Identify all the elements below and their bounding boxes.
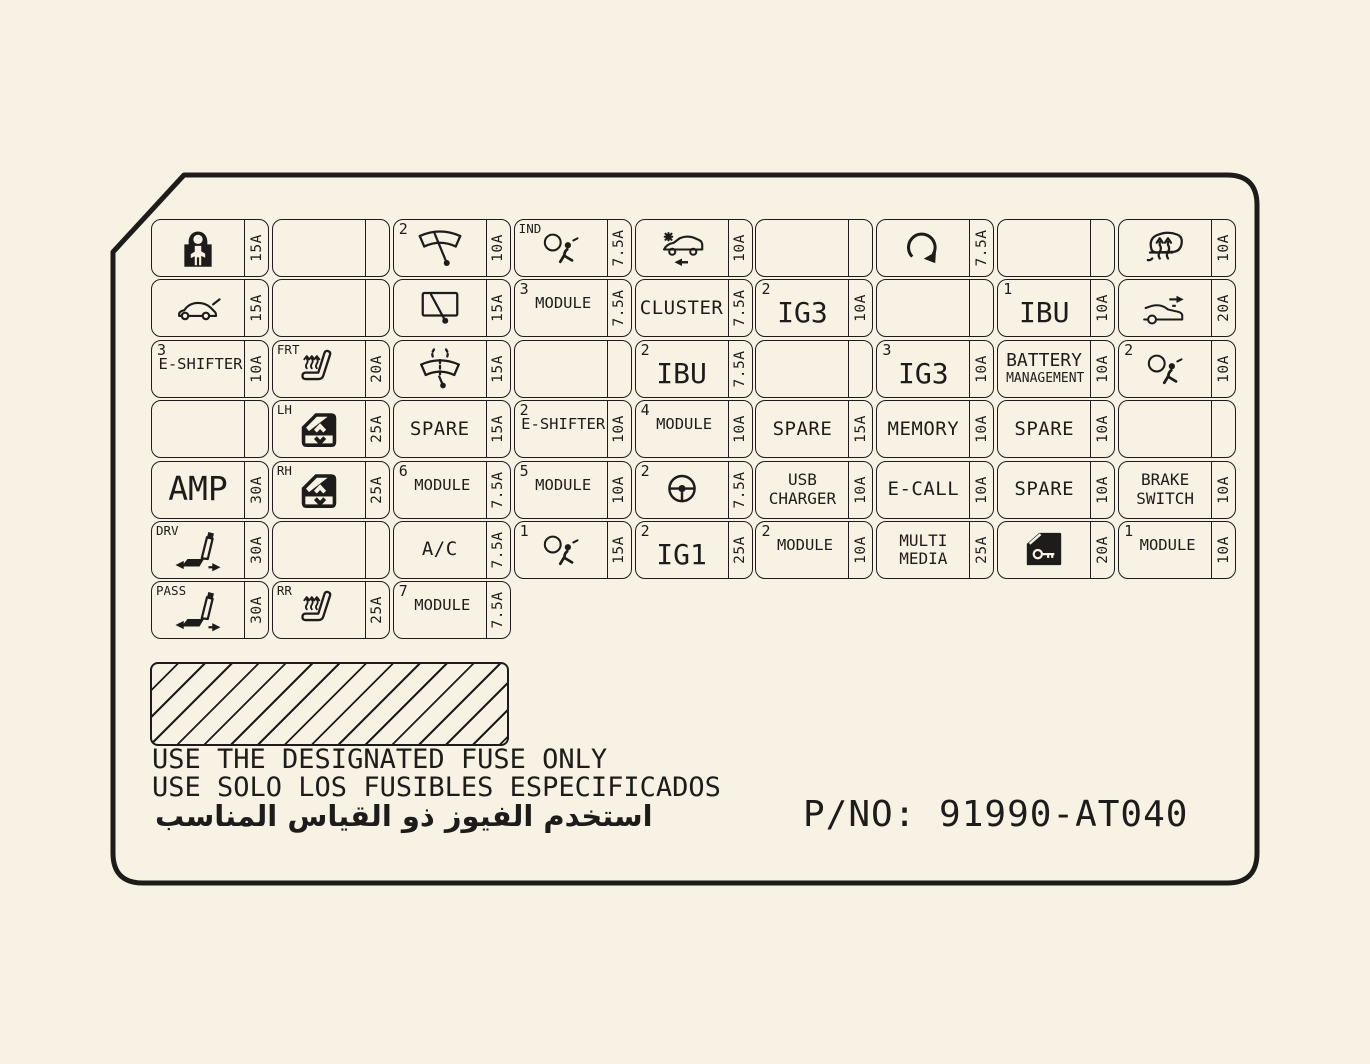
amp-strip: 15A <box>848 401 872 457</box>
fuse-cell-brake-switch: BRAKESWITCH10A <box>1118 461 1236 519</box>
fuse-cell-empty <box>514 340 632 398</box>
fuse-cell-empty <box>1118 400 1236 458</box>
fuse-cell-empty <box>755 340 873 398</box>
cell-label: MEDIA <box>899 550 947 568</box>
cell-label-lines: MODULE <box>414 477 470 494</box>
amp-rating: 10A <box>1216 355 1232 383</box>
fuse-cell-empty <box>272 219 390 277</box>
amp-strip: 20A <box>365 341 389 397</box>
cell-label-lines: MULTIMEDIA <box>899 532 947 569</box>
amp-strip: 25A <box>365 401 389 457</box>
fuse-cell-e-shifter: 2E-SHIFTER10A <box>514 400 632 458</box>
amp-rating: 10A <box>1095 355 1111 383</box>
fuse-cell-body <box>877 280 969 336</box>
amp-strip: 25A <box>365 582 389 638</box>
amp-rating: 7.5A <box>490 592 506 629</box>
cell-label-lines: IG3 <box>898 358 949 389</box>
cell-label: SWITCH <box>1136 490 1194 508</box>
amp-rating: 10A <box>974 415 990 443</box>
cell-label: MODULE <box>414 477 470 494</box>
fuse-cell-module: 4MODULE10A <box>635 400 753 458</box>
cell-label-lines: SPARE <box>773 419 833 440</box>
fuse-cell-body: 5MODULE <box>515 462 607 518</box>
amp-rating: 30A <box>249 536 265 564</box>
amp-strip: 10A <box>607 401 631 457</box>
amp-rating: 7.5A <box>974 230 990 267</box>
amp-strip: 7.5A <box>486 462 510 518</box>
amp-strip: 7.5A <box>486 522 510 578</box>
fuse-cell-body: 2 <box>1119 341 1211 397</box>
fuse-cell-empty <box>151 400 269 458</box>
fuse-cell-body: 2 <box>394 220 486 276</box>
fuse-cell-spare: SPARE10A <box>997 461 1115 519</box>
cell-label: IG3 <box>898 358 949 389</box>
amp-strip: 10A <box>1211 220 1235 276</box>
amp-strip <box>365 280 389 336</box>
fuse-cell-body <box>756 220 848 276</box>
cell-label-lines: USBCHARGER <box>769 471 836 508</box>
fuse-cell-body <box>152 220 244 276</box>
fuse-cell-airbag: IND7.5A <box>514 219 632 277</box>
amp-rating: 20A <box>1216 295 1232 323</box>
amp-strip: 30A <box>244 462 268 518</box>
fuse-cell-washer: 15A <box>393 340 511 398</box>
fuse-cell-window-switch: LH25A <box>272 400 390 458</box>
fuse-cell-empty <box>997 219 1115 277</box>
fuse-cell-body: 1MODULE <box>1119 522 1211 578</box>
fuse-cell-body: DRV <box>152 522 244 578</box>
fuse-cell-body <box>1119 280 1211 336</box>
amp-rating: 15A <box>490 295 506 323</box>
amp-strip <box>365 522 389 578</box>
fuse-cell-module: 6MODULE7.5A <box>393 461 511 519</box>
fuse-cell-spare: SPARE15A <box>755 400 873 458</box>
amp-rating: 15A <box>853 415 869 443</box>
fuse-cell-body: 4MODULE <box>636 401 728 457</box>
amp-strip: 10A <box>1090 280 1114 336</box>
fuse-cell-body: 2IBU <box>636 341 728 397</box>
cell-index-number: 2 <box>1124 341 1133 359</box>
fuse-cell-body: SPARE <box>394 401 486 457</box>
fuse-cell-empty <box>876 279 994 337</box>
fuse-cell-body: PASS <box>152 582 244 638</box>
fuse-cell-body: LH <box>273 401 365 457</box>
fuse-cell-body <box>273 220 365 276</box>
fuse-cell-body: 2E-SHIFTER <box>515 401 607 457</box>
amp-strip: 10A <box>607 462 631 518</box>
amp-strip: 10A <box>1211 462 1235 518</box>
cell-index-number: 7 <box>399 582 408 600</box>
amp-rating: 25A <box>369 596 385 624</box>
fuse-cell-car-tailgate: 15A <box>151 279 269 337</box>
cell-position-tag: RR <box>277 583 292 598</box>
amp-rating: 7.5A <box>611 290 627 327</box>
cell-label-lines: BRAKESWITCH <box>1136 471 1194 508</box>
fuse-cell-wiper-front: 210A <box>393 219 511 277</box>
amp-strip: 7.5A <box>486 582 510 638</box>
fuse-cell-body <box>998 220 1090 276</box>
fuse-cell-circular-arrow: 7.5A <box>876 219 994 277</box>
fuse-cell-module: 1MODULE10A <box>1118 521 1236 579</box>
cell-index-number: 2 <box>641 341 650 359</box>
cell-index-number: 2 <box>641 462 650 480</box>
fuse-cell-body: 7MODULE <box>394 582 486 638</box>
amp-strip: 30A <box>244 582 268 638</box>
cell-label: AMP <box>168 471 228 508</box>
amp-strip: 15A <box>244 280 268 336</box>
fuse-cell-body: MEMORY <box>877 401 969 457</box>
door-key-icon <box>1020 528 1068 572</box>
amp-rating: 7.5A <box>732 350 748 387</box>
amp-rating: 25A <box>732 536 748 564</box>
cell-label: MODULE <box>535 295 591 312</box>
amp-rating: 10A <box>732 415 748 443</box>
amp-strip: 10A <box>848 522 872 578</box>
cell-index-number: 3 <box>520 280 529 298</box>
amp-rating: 25A <box>369 415 385 443</box>
amp-strip: 7.5A <box>728 280 752 336</box>
fuse-cell-child-lock: 15A <box>151 219 269 277</box>
cell-label-lines: IBU <box>656 358 707 389</box>
amp-strip: 20A <box>1211 280 1235 336</box>
fuse-grid: 15A210AIND7.5A10A7.5A10A15A15A3MODULE7.5… <box>151 219 1236 639</box>
fuse-cell-steering-wheel: 27.5A <box>635 461 753 519</box>
fuse-cell-multi-media: MULTIMEDIA25A <box>876 521 994 579</box>
cell-label-lines: MODULE <box>1140 537 1196 554</box>
amp-strip <box>848 220 872 276</box>
cell-position-tag: DRV <box>156 523 179 538</box>
cell-index-number: 3 <box>882 341 891 359</box>
fuse-cell-usb-charger: USBCHARGER10A <box>755 461 873 519</box>
fuse-cell-module: 7MODULE7.5A <box>393 581 511 639</box>
fuse-cell-body <box>273 280 365 336</box>
fuse-cell-body <box>636 220 728 276</box>
fuse-cell-seat-power: PASS30A <box>151 581 269 639</box>
amp-strip: 10A <box>969 462 993 518</box>
amp-strip: 10A <box>969 341 993 397</box>
amp-strip: 15A <box>486 401 510 457</box>
amp-rating: 10A <box>974 355 990 383</box>
cell-label-lines: SPARE <box>1014 479 1074 500</box>
cell-label: SPARE <box>773 419 833 440</box>
fuse-cell-body: SPARE <box>998 462 1090 518</box>
amp-strip <box>1211 401 1235 457</box>
cell-index-number: 6 <box>399 462 408 480</box>
fuse-cell-body: 2IG3 <box>756 280 848 336</box>
amp-strip: 10A <box>244 341 268 397</box>
seat-heated-icon <box>294 346 344 392</box>
fuse-cell-body <box>998 522 1090 578</box>
fuse-cell-body: AMP <box>152 462 244 518</box>
amp-strip <box>1090 220 1114 276</box>
amp-rating: 15A <box>249 234 265 262</box>
cell-index-number: 1 <box>1003 280 1012 298</box>
amp-strip: 25A <box>969 522 993 578</box>
amp-strip: 7.5A <box>607 220 631 276</box>
amp-rating: 10A <box>853 295 869 323</box>
defrost-rear-icon <box>1140 224 1190 272</box>
cell-label: IBU <box>1019 297 1070 328</box>
fuse-cell-body <box>394 280 486 336</box>
amp-strip: 10A <box>728 401 752 457</box>
cell-label-lines: MODULE <box>414 597 470 614</box>
window-switch-icon <box>294 406 344 452</box>
amp-strip: 15A <box>486 341 510 397</box>
fuse-cell-body: A/C <box>394 522 486 578</box>
fuse-cell-ig3: 3IG310A <box>876 340 994 398</box>
amp-strip <box>969 280 993 336</box>
cell-label: E-SHIFTER <box>159 356 243 373</box>
cell-position-tag: FRT <box>277 342 300 357</box>
amp-strip <box>848 341 872 397</box>
fuse-cell-body: E-CALL <box>877 462 969 518</box>
cell-label-lines: SPARE <box>1014 419 1074 440</box>
fuse-cell-door-key: 20A <box>997 521 1115 579</box>
fuse-cell-empty <box>755 219 873 277</box>
fuse-cell-empty <box>272 521 390 579</box>
amp-rating: 10A <box>490 234 506 262</box>
amp-strip: 15A <box>244 220 268 276</box>
amp-rating: 10A <box>732 234 748 262</box>
cell-label: USB <box>788 471 817 489</box>
cell-label: MEMORY <box>888 419 960 440</box>
cell-label-lines: IG1 <box>656 539 707 570</box>
cell-label: E-CALL <box>888 479 960 500</box>
amp-strip: 10A <box>1090 462 1114 518</box>
fuse-cell-spare: SPARE15A <box>393 400 511 458</box>
amp-strip: 10A <box>486 220 510 276</box>
cell-position-tag: RH <box>277 463 292 478</box>
fuse-cell-ibu: 2IBU7.5A <box>635 340 753 398</box>
amp-strip: 10A <box>969 401 993 457</box>
amp-strip: 25A <box>365 462 389 518</box>
cell-label-lines: BATTERYMANAGEMENT <box>1006 351 1084 386</box>
cell-label: IG1 <box>656 539 707 570</box>
cell-label: CLUSTER <box>640 298 724 319</box>
cell-label: MODULE <box>1140 537 1196 554</box>
cell-label: MODULE <box>414 597 470 614</box>
fuse-cell-body: BRAKESWITCH <box>1119 462 1211 518</box>
amp-rating: 7.5A <box>611 230 627 267</box>
amp-rating: 10A <box>1216 234 1232 262</box>
amp-rating: 7.5A <box>490 531 506 568</box>
car-tailgate-icon <box>169 285 227 331</box>
amp-rating: 20A <box>369 355 385 383</box>
cell-label: IG3 <box>777 297 828 328</box>
cell-index-number: 2 <box>399 220 408 238</box>
amp-rating: 10A <box>853 536 869 564</box>
cell-label-lines: A/C <box>422 539 458 560</box>
amp-strip: 25A <box>728 522 752 578</box>
cell-label: IBU <box>656 358 707 389</box>
fuse-cell-body <box>877 220 969 276</box>
amp-rating: 10A <box>853 476 869 504</box>
cell-label-lines: AMP <box>168 471 228 508</box>
fuse-cell-body <box>515 341 607 397</box>
cell-label-lines: MODULE <box>656 416 712 433</box>
fuse-cell-window-switch: RH25A <box>272 461 390 519</box>
note-arabic: استخدم الفيوز ذو القياس المناسب <box>155 799 653 833</box>
amp-strip: 7.5A <box>607 280 631 336</box>
cell-position-tag: PASS <box>156 583 186 598</box>
amp-strip: 15A <box>486 280 510 336</box>
steering-wheel-icon <box>659 467 705 513</box>
cell-label-lines: MODULE <box>535 477 591 494</box>
cell-position-tag: LH <box>277 402 292 417</box>
amp-rating: 10A <box>249 355 265 383</box>
cell-position-tag: IND <box>519 221 542 236</box>
fuse-cell-body: RR <box>273 582 365 638</box>
amp-strip: 7.5A <box>728 462 752 518</box>
fuse-cell-body: 2 <box>636 462 728 518</box>
window-switch-icon <box>294 467 344 513</box>
fuse-cell-body: SPARE <box>756 401 848 457</box>
fuse-box-card: 15A210AIND7.5A10A7.5A10A15A15A3MODULE7.5… <box>0 0 1370 1064</box>
amp-strip: 10A <box>728 220 752 276</box>
amp-strip: 15A <box>607 522 631 578</box>
cell-label-lines: E-SHIFTER <box>159 356 243 373</box>
amp-strip: 20A <box>1090 522 1114 578</box>
amp-rating: 10A <box>1095 295 1111 323</box>
cell-label: E-SHIFTER <box>521 416 605 433</box>
cell-label: MODULE <box>535 477 591 494</box>
cell-index-number: 2 <box>641 522 650 540</box>
cell-label: MODULE <box>656 416 712 433</box>
car-crash-icon <box>653 224 711 272</box>
fuse-cell-ig3: 2IG310A <box>755 279 873 337</box>
amp-rating: 7.5A <box>732 290 748 327</box>
airbag-icon <box>535 226 587 270</box>
cell-index-number: 3 <box>157 341 166 359</box>
fuse-cell-body: BATTERYMANAGEMENT <box>998 341 1090 397</box>
amp-strip <box>365 220 389 276</box>
cell-index-number: 2 <box>761 522 770 540</box>
fuse-cell-body <box>152 401 244 457</box>
amp-rating: 10A <box>1216 536 1232 564</box>
fuse-cell-airbag: 210A <box>1118 340 1236 398</box>
washer-icon <box>413 345 467 393</box>
cell-label-lines: SPARE <box>410 419 470 440</box>
fuse-cell-body: SPARE <box>998 401 1090 457</box>
amp-rating: 10A <box>1216 476 1232 504</box>
fuse-cell-body: 3E-SHIFTER <box>152 341 244 397</box>
fuse-cell-body <box>152 280 244 336</box>
fuse-cell-car-crash: 10A <box>635 219 753 277</box>
fuse-cell-body: 1 <box>515 522 607 578</box>
fuse-cell-body: RH <box>273 462 365 518</box>
fuse-cell-seat-heated: FRT20A <box>272 340 390 398</box>
amp-strip: 10A <box>1211 341 1235 397</box>
cell-label-lines: MODULE <box>777 537 833 554</box>
fuse-cell-body: 6MODULE <box>394 462 486 518</box>
fuse-cell-body: FRT <box>273 341 365 397</box>
fuse-cell-car-arrow: 20A <box>1118 279 1236 337</box>
fuse-cell-body <box>394 341 486 397</box>
cell-label: SPARE <box>410 419 470 440</box>
fuse-cell-battery-management: BATTERYMANAGEMENT10A <box>997 340 1115 398</box>
child-lock-icon <box>175 223 221 273</box>
cell-label-lines: E-SHIFTER <box>521 416 605 433</box>
amp-strip: 10A <box>848 280 872 336</box>
amp-rating: 7.5A <box>490 471 506 508</box>
cell-index-number: 2 <box>761 280 770 298</box>
fuse-cell-ibu: 1IBU10A <box>997 279 1115 337</box>
circular-arrow-icon <box>900 225 946 271</box>
fuse-cell-module: 2MODULE10A <box>755 521 873 579</box>
amp-strip: 10A <box>848 462 872 518</box>
cell-index-number: 1 <box>520 522 529 540</box>
fuse-cell-body: CLUSTER <box>636 280 728 336</box>
fuse-cell-spare: SPARE10A <box>997 400 1115 458</box>
amp-rating: 10A <box>974 476 990 504</box>
amp-strip: 10A <box>1211 522 1235 578</box>
cell-label: MODULE <box>777 537 833 554</box>
amp-rating: 30A <box>249 596 265 624</box>
fuse-cell-body <box>1119 401 1211 457</box>
fuse-cell-e-shifter: 3E-SHIFTER10A <box>151 340 269 398</box>
fuse-cell-body: 3IG3 <box>877 341 969 397</box>
cell-label-lines: MEMORY <box>888 419 960 440</box>
amp-rating: 10A <box>611 476 627 504</box>
amp-strip: 10A <box>1090 341 1114 397</box>
fuse-cell-body: MULTIMEDIA <box>877 522 969 578</box>
fuse-cell-body: USBCHARGER <box>756 462 848 518</box>
hatch-box <box>150 662 509 746</box>
fuse-cell-body <box>1119 220 1211 276</box>
cell-label: MULTI <box>899 532 947 550</box>
amp-rating: 7.5A <box>732 471 748 508</box>
amp-rating: 25A <box>974 536 990 564</box>
amp-rating: 20A <box>1095 536 1111 564</box>
fuse-cell-body: 3MODULE <box>515 280 607 336</box>
fuse-cell-module: 5MODULE10A <box>514 461 632 519</box>
fuse-cell-memory: MEMORY10A <box>876 400 994 458</box>
cell-label-lines: IBU <box>1019 297 1070 328</box>
fuse-cell-cluster: CLUSTER7.5A <box>635 279 753 337</box>
amp-strip: 30A <box>244 522 268 578</box>
amp-rating: 15A <box>490 355 506 383</box>
part-number: P/NO: 91990-AT040 <box>803 794 1188 835</box>
wiper-rear-icon <box>414 284 466 332</box>
fuse-cell-empty <box>272 279 390 337</box>
fuse-cell-seat-heated: RR25A <box>272 581 390 639</box>
cell-label-lines: E-CALL <box>888 479 960 500</box>
fuse-cell-ig1: 2IG125A <box>635 521 753 579</box>
car-arrow-icon <box>1136 285 1194 331</box>
fuse-cell-body: IND <box>515 220 607 276</box>
amp-strip: 7.5A <box>969 220 993 276</box>
seat-heated-icon <box>294 587 344 633</box>
cell-label: CHARGER <box>769 490 836 508</box>
amp-rating: 15A <box>490 415 506 443</box>
cell-index-number: 5 <box>520 462 529 480</box>
fuse-cell-ac: A/C7.5A <box>393 521 511 579</box>
amp-strip <box>607 341 631 397</box>
cell-index-number: 2 <box>520 401 529 419</box>
note-english: USE THE DESIGNATED FUSE ONLY <box>152 744 607 775</box>
cell-label: BATTERY <box>1006 351 1082 371</box>
amp-strip: 10A <box>1090 401 1114 457</box>
fuse-cell-e-call: E-CALL10A <box>876 461 994 519</box>
fuse-cell-defrost-rear: 10A <box>1118 219 1236 277</box>
cell-label: SPARE <box>1014 479 1074 500</box>
airbag-icon <box>535 528 587 572</box>
cell-index-number: 1 <box>1124 522 1133 540</box>
amp-rating: 15A <box>611 536 627 564</box>
amp-rating: 30A <box>249 476 265 504</box>
fuse-cell-body: 2MODULE <box>756 522 848 578</box>
cell-label-lines: MODULE <box>535 295 591 312</box>
